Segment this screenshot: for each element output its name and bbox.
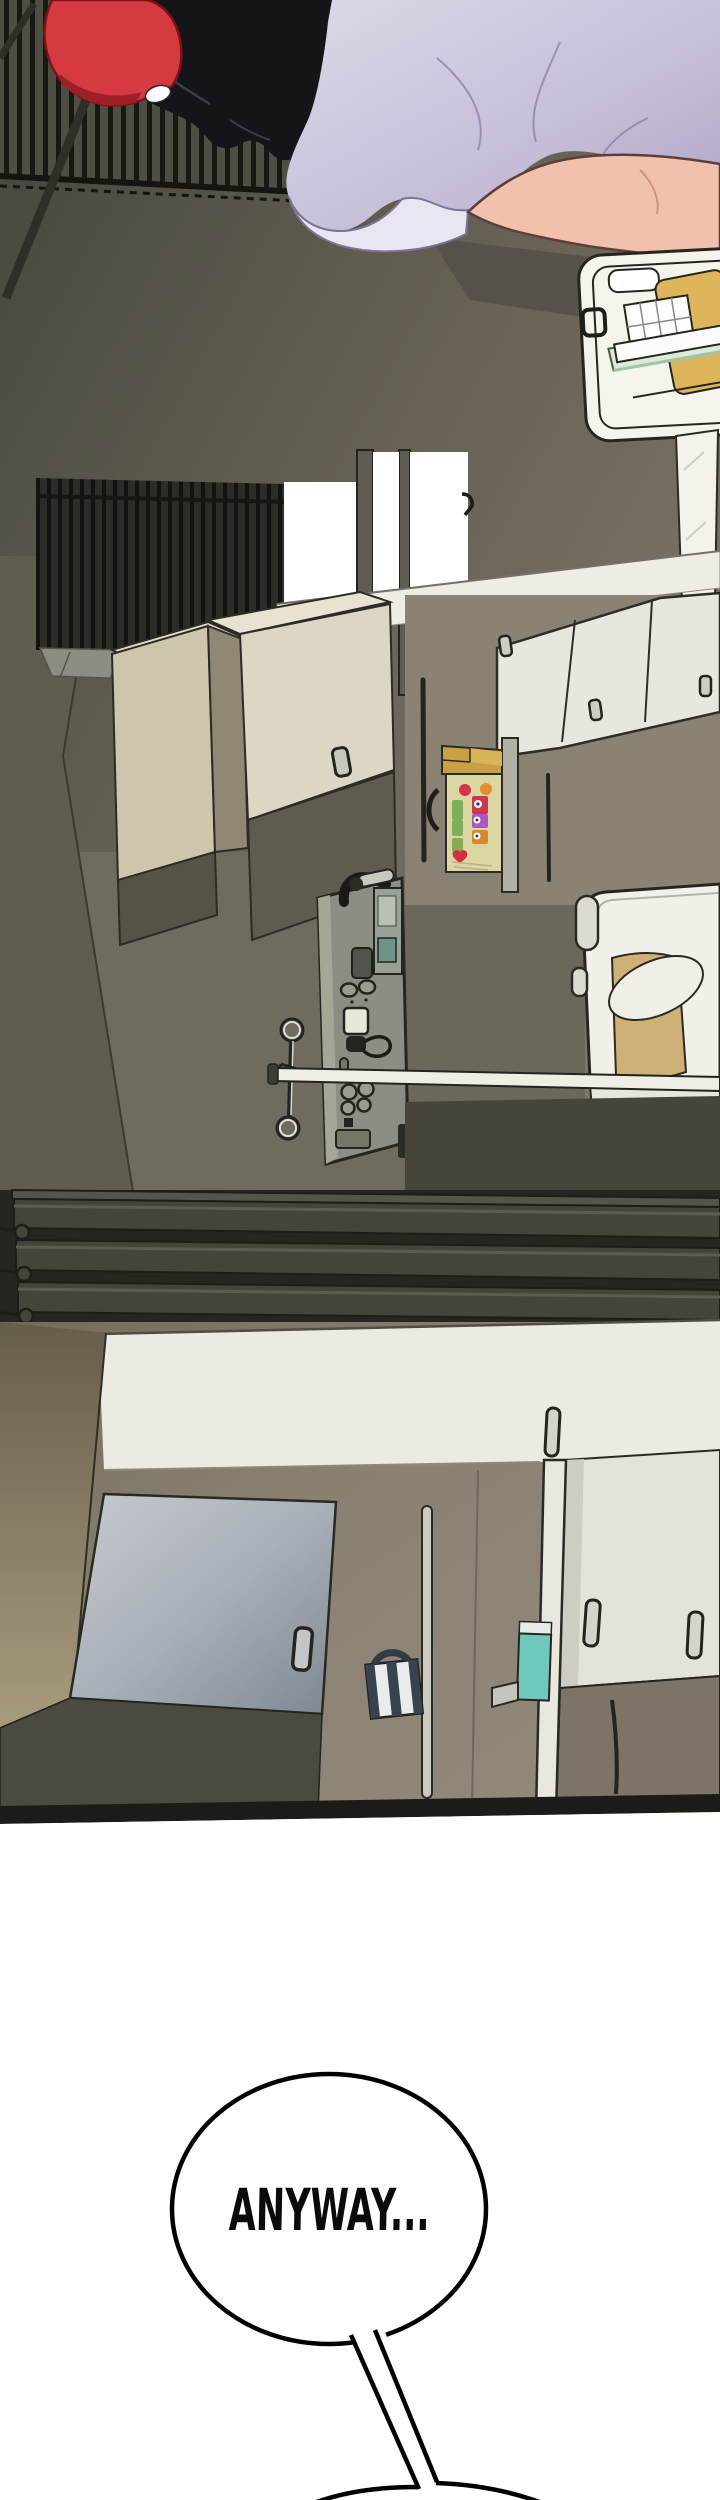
dish-rack bbox=[578, 247, 720, 442]
cabinet-handle bbox=[687, 1612, 703, 1659]
rack-slot bbox=[608, 268, 659, 293]
chair-handle-slot bbox=[572, 968, 587, 996]
cupboard-handle bbox=[499, 635, 513, 656]
lower-dark-wall bbox=[405, 1096, 720, 1200]
sink-unit bbox=[318, 868, 410, 1164]
comic-page-svg: Rotated (sideways) kitchen interior: wom… bbox=[0, 0, 720, 2500]
counter-white-band bbox=[98, 1320, 720, 1470]
knob bbox=[358, 1099, 371, 1112]
comic-page: Rotated (sideways) kitchen interior: wom… bbox=[0, 0, 720, 2500]
cabinet-handle bbox=[545, 1408, 560, 1457]
cabinet-door bbox=[70, 1494, 336, 1714]
door-handle bbox=[292, 1627, 313, 1670]
knob bbox=[342, 1085, 357, 1100]
right-lower-cabinet bbox=[556, 1676, 720, 1814]
cupboard-handle bbox=[589, 699, 603, 720]
knob bbox=[342, 1102, 355, 1115]
chair-handle-slot bbox=[576, 896, 598, 950]
panel-2-kitchen-counter: Rotated kitchen counter close-up: white … bbox=[0, 1320, 720, 1824]
blind-slats bbox=[0, 1190, 720, 1324]
speech-text: ANYWAY... bbox=[228, 2178, 430, 2245]
tall-door-handle bbox=[423, 680, 424, 860]
thin-pole bbox=[422, 1506, 432, 1798]
cabinet-handle bbox=[583, 1600, 600, 1647]
window-pane bbox=[373, 452, 399, 602]
knob bbox=[341, 984, 357, 997]
slat-hook bbox=[15, 1225, 29, 1239]
soap-dispenser bbox=[352, 948, 372, 978]
cabinet-handle bbox=[332, 747, 352, 777]
teal-dispenser bbox=[517, 1621, 552, 1700]
slat-hook bbox=[17, 1267, 31, 1281]
window-pane bbox=[284, 482, 357, 604]
panel-1-kitchen-scene: Rotated (sideways) kitchen interior: wom… bbox=[0, 0, 720, 1324]
tall-door-handle bbox=[548, 775, 549, 880]
slat-hook bbox=[19, 1309, 33, 1323]
knob bbox=[359, 981, 375, 994]
cupboard-handle bbox=[700, 676, 711, 696]
